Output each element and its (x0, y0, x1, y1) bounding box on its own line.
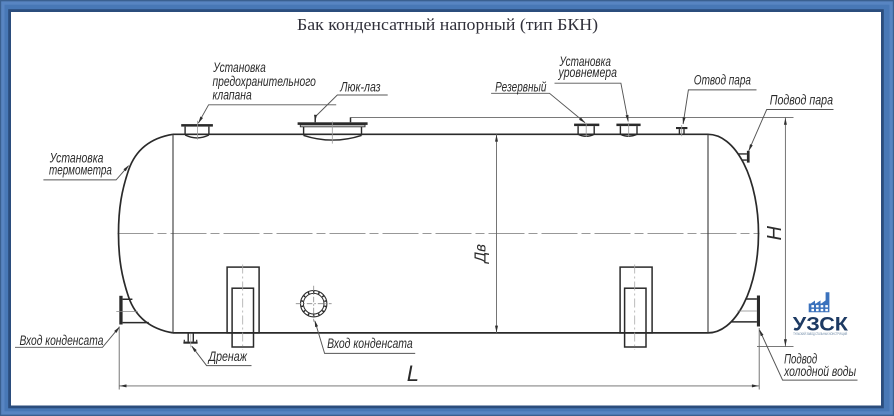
svg-text:Дренаж: Дренаж (207, 348, 248, 364)
svg-text:Люк-лаз: Люк-лаз (340, 78, 381, 94)
svg-text:Бак конденсатный напорный (тип: Бак конденсатный напорный (тип БКН) (297, 15, 598, 34)
svg-text:Резервный: Резервный (495, 78, 546, 94)
svg-text:L: L (407, 361, 419, 386)
svg-text:Подвод пара: Подвод пара (770, 91, 833, 107)
svg-text:Вход конденсата: Вход конденсата (327, 335, 413, 351)
svg-text:Дв: Дв (473, 244, 490, 264)
svg-text:холодной воды: холодной воды (783, 363, 856, 379)
svg-text:ТУЛЬСКИЙ ЗАВОД СТАЛЬНЫХ КОНСТР: ТУЛЬСКИЙ ЗАВОД СТАЛЬНЫХ КОНСТРУКЦИЙ (793, 332, 847, 336)
svg-text:уровнемера: уровнемера (558, 64, 617, 80)
svg-text:H: H (764, 226, 786, 241)
svg-text:термометра: термометра (49, 161, 112, 177)
svg-text:Отвод пара: Отвод пара (694, 71, 751, 87)
svg-text:Вход конденсата: Вход конденсата (20, 332, 104, 348)
svg-text:клапана: клапана (213, 86, 252, 102)
